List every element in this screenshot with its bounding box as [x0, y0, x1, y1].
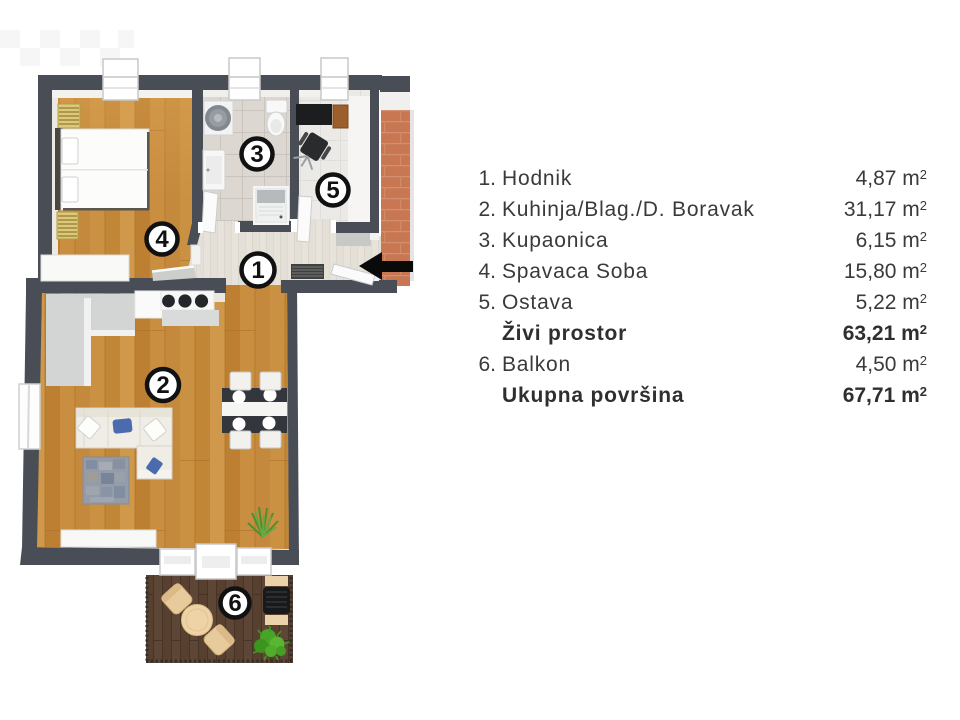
svg-text:6: 6 [228, 590, 241, 617]
svg-text:4: 4 [155, 226, 169, 253]
svg-text:2: 2 [156, 372, 169, 399]
svg-text:1: 1 [251, 257, 264, 284]
svg-text:5: 5 [326, 177, 339, 204]
svg-text:3: 3 [250, 141, 263, 168]
